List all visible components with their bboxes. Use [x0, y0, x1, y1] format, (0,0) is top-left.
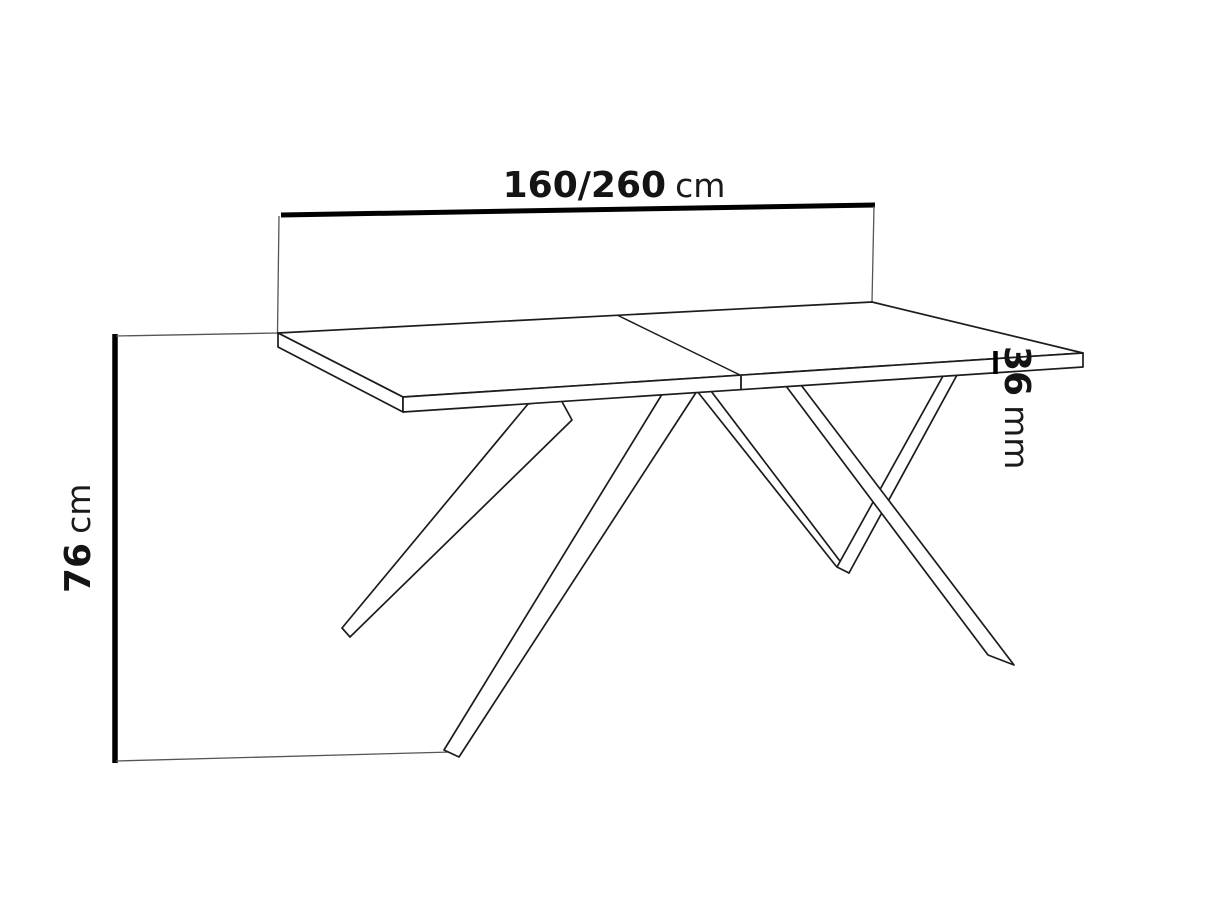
height-extension-line-bottom [116, 752, 452, 761]
length-dimension-label: 160/260cm [452, 168, 776, 204]
height-extension-line-top [116, 333, 278, 336]
thickness-unit: mm [997, 405, 1036, 469]
length-value: 160/260 [503, 165, 666, 206]
height-value: 76 [58, 543, 99, 593]
length-extension-line-left [278, 216, 280, 334]
leg-front-right [786, 385, 1014, 665]
length-unit: cm [675, 166, 725, 205]
leg-front-left [444, 391, 697, 757]
length-dimension-line [281, 205, 875, 215]
table-legs [342, 375, 1014, 757]
height-dimension-label: 76cm [61, 484, 97, 593]
thickness-dimension-label: 36mm [998, 346, 1034, 469]
diagram-canvas: 160/260cm 76cm 36mm [0, 0, 1214, 911]
height-unit: cm [59, 484, 98, 534]
length-extension-line-right [872, 206, 874, 302]
thickness-value: 36 [996, 346, 1037, 396]
